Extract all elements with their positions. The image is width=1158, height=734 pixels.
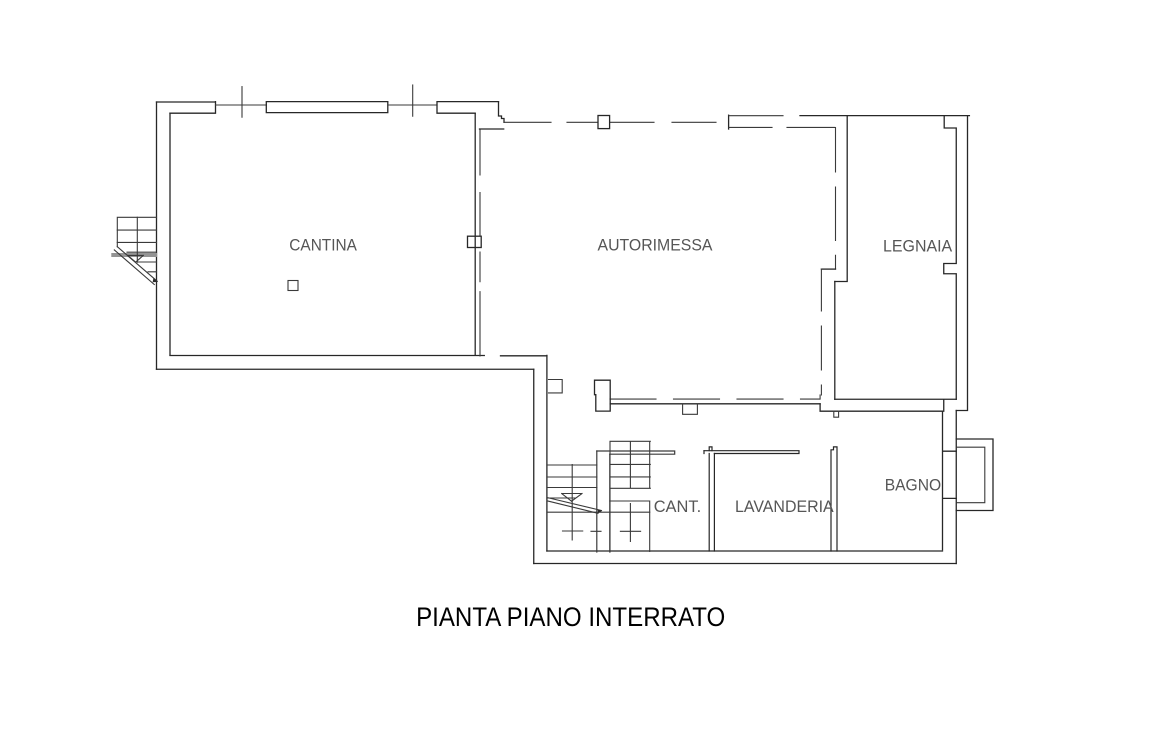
- svg-text:AUTORIMESSA: AUTORIMESSA: [598, 236, 714, 255]
- svg-text:LAVANDERIA: LAVANDERIA: [735, 497, 834, 516]
- svg-text:BAGNO: BAGNO: [885, 476, 942, 495]
- svg-text:CANTINA: CANTINA: [289, 236, 357, 255]
- svg-text:PIANTA PIANO INTERRATO: PIANTA PIANO INTERRATO: [416, 602, 725, 632]
- svg-text:CANT.: CANT.: [654, 497, 702, 516]
- svg-text:LEGNAIA: LEGNAIA: [883, 236, 953, 255]
